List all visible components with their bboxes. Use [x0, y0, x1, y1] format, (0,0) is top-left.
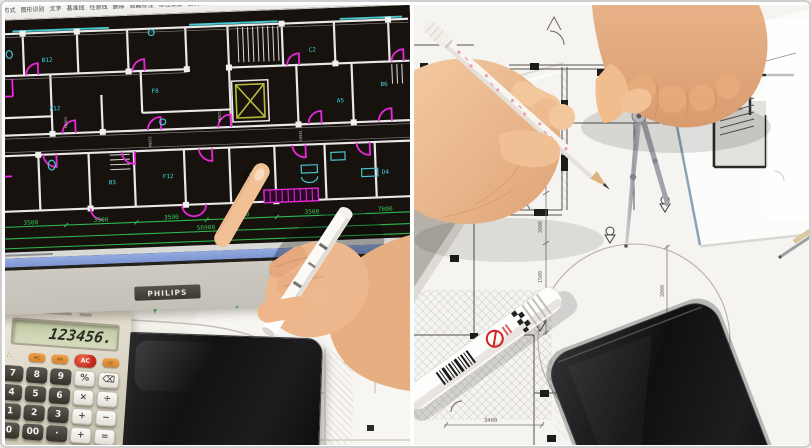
svg-text:2000: 2000 — [660, 285, 666, 297]
left-photo-cad-monitor-scene: 123456. ∴ MC MR AC CE 7 8 9 % ⌫ 4 5 — [5, 5, 410, 445]
svg-text:3400: 3400 — [484, 418, 497, 424]
hand-shadow — [414, 218, 604, 262]
svg-text:1500: 1500 — [538, 271, 544, 283]
screenshot-root: 123456. ∴ MC MR AC CE 7 8 9 % ⌫ 4 5 — [0, 0, 811, 448]
compass-hand — [581, 5, 771, 153]
fingertip-over-pencil — [549, 104, 575, 130]
drafting-scene: 520 2000 1500 2000 3400 9000 0 — [414, 5, 810, 445]
index-finger — [211, 160, 273, 250]
compass-point-mark — [624, 244, 628, 248]
pointing-hand-overlay — [5, 5, 410, 445]
right-photo-drafting-scene: 520 2000 1500 2000 3400 9000 0 — [414, 5, 810, 445]
